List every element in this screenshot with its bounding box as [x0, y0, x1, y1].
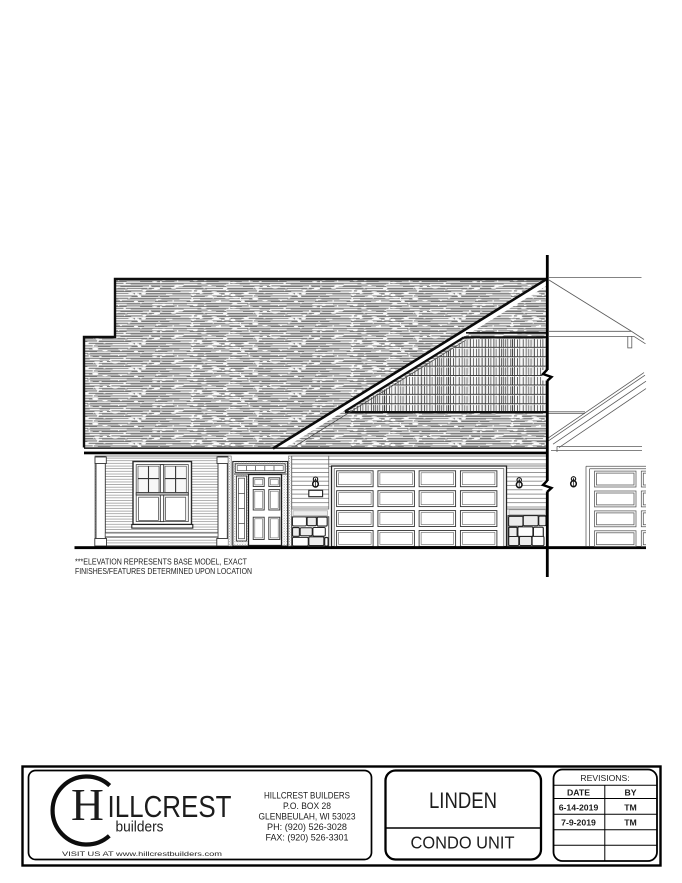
svg-text:FAX: (920) 526-3301: FAX: (920) 526-3301: [266, 833, 349, 843]
svg-text:BY: BY: [624, 787, 636, 797]
svg-text:7-9-2019: 7-9-2019: [561, 817, 596, 827]
svg-text:builders: builders: [116, 819, 164, 836]
svg-text:PH: (920) 526-3028: PH: (920) 526-3028: [267, 822, 347, 832]
svg-text:FINISHES/FEATURES DETERMINED U: FINISHES/FEATURES DETERMINED UPON LOCATI…: [75, 567, 252, 576]
svg-text:HILLCREST BUILDERS: HILLCREST BUILDERS: [264, 791, 350, 801]
svg-text:VISIT US AT www.hillcrestbuild: VISIT US AT www.hillcrestbuilders.com: [62, 851, 222, 858]
svg-text:6-14-2019: 6-14-2019: [559, 803, 599, 813]
svg-text:REVISIONS:: REVISIONS:: [580, 773, 629, 783]
svg-text:DATE: DATE: [567, 787, 590, 797]
svg-text:***ELEVATION REPRESENTS BASE M: ***ELEVATION REPRESENTS BASE MODEL, EXAC…: [75, 558, 247, 567]
svg-text:P.O. BOX 28: P.O. BOX 28: [283, 801, 331, 811]
svg-text:TM: TM: [624, 803, 637, 813]
svg-text:CONDO UNIT: CONDO UNIT: [411, 833, 515, 853]
svg-text:TM: TM: [624, 817, 637, 827]
svg-text:GLENBEULAH, WI 53023: GLENBEULAH, WI 53023: [259, 812, 356, 822]
svg-text:H: H: [71, 779, 104, 830]
svg-text:LINDEN: LINDEN: [429, 788, 497, 813]
